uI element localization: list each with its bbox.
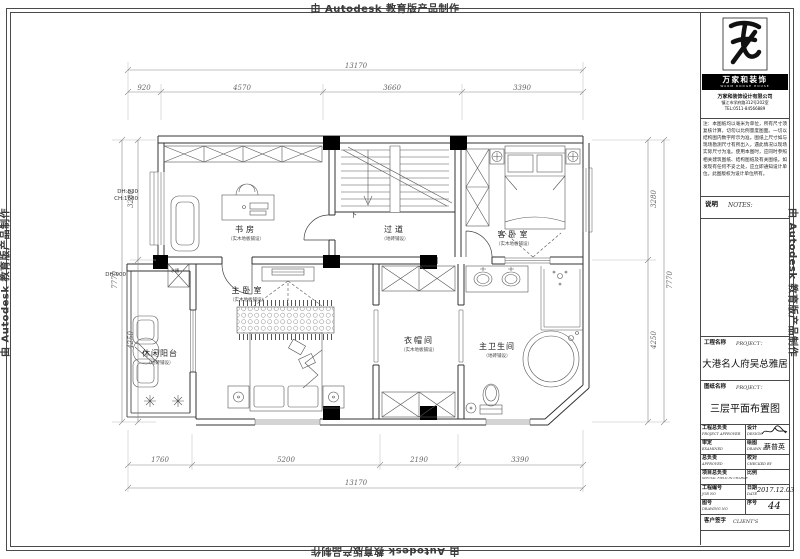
dim-left-2: 4250: [127, 320, 135, 360]
tb-line: [700, 514, 790, 515]
tb-grid-vline: [745, 424, 746, 514]
titleblock-divider: [700, 12, 701, 545]
tb-line: [700, 380, 790, 381]
project-label: 工程名称: [704, 340, 726, 346]
room-study: 书房 （实木地板铺设）: [228, 224, 264, 242]
tb-line: [700, 196, 790, 197]
room-cloak: 衣帽间 （实木地板铺设）: [401, 335, 437, 353]
furniture: [133, 146, 583, 417]
field-drawing-no: 图号 DRAWING NO: [702, 501, 728, 511]
dim-left-overall: 7770: [111, 260, 119, 300]
room-master-bath: 主卫生间 （地砖铺设）: [479, 341, 515, 359]
tb-line: [700, 218, 790, 219]
structural-pillars: [153, 136, 467, 420]
room-master-bedroom: 主卧室 （实木地板铺设）: [230, 285, 266, 303]
dim-top-2: 4570: [233, 84, 251, 92]
notes-label-en: NOTES:: [728, 202, 753, 209]
company-phone: TEL:0511-84566889: [700, 106, 790, 111]
field-serial: 序号: [747, 501, 757, 507]
dim-top-3: 3660: [383, 84, 401, 92]
client-sign-label-en: CLIENT'S: [733, 519, 758, 525]
field-scale: 比例: [747, 471, 757, 477]
project-label-en: PROJECT：: [736, 341, 765, 347]
room-balcony: 休闲阳台 （地砖铺设）: [142, 348, 178, 366]
dim-top-4: 3390: [513, 84, 531, 92]
dim-top-overall: 13170: [345, 62, 367, 70]
dim-right-overall: 7770: [666, 260, 674, 300]
designer-signature: [760, 425, 788, 438]
balcony-height-note: DH:900: [92, 272, 126, 279]
company-name: 万家和装饰设计有限公司: [700, 93, 790, 100]
serial-value: 44: [768, 501, 781, 512]
windows: [150, 168, 592, 425]
drawn-by-name: 蔡普英: [764, 442, 785, 452]
tb-line: [700, 336, 790, 337]
dim-bottom-3: 2190: [410, 456, 428, 464]
project-name: 大港名人府吴总雅居: [700, 356, 790, 370]
brand-banner: 万家和装饰 WARM DODGE HOUSE: [702, 74, 788, 90]
sink-label: 水槽: [171, 268, 179, 273]
dimension-lines: [119, 67, 667, 491]
room-guest-bedroom: 客卧室 （实木地板铺设）: [496, 229, 532, 247]
field-checked-by: 校对 CHECKED BY: [747, 456, 772, 466]
dim-bottom-overall: 13170: [345, 479, 367, 487]
drawing-sheet: 由 Autodesk 教育版产品制作 由 Autodesk 教育版产品制作 由 …: [0, 0, 800, 559]
dim-bottom-1: 1760: [151, 456, 169, 464]
field-job-no: 工程编号 JOB NO: [702, 486, 722, 496]
drawing-label: 图纸名称: [704, 384, 726, 390]
window-height-note: DH:830 CH:1680: [96, 189, 138, 203]
field-date: 日期 DATE: [747, 486, 757, 496]
field-project-approver: 工程总负责 PROJECT APPROVER: [702, 426, 740, 436]
field-examined: 审定 EXAMINED: [702, 441, 723, 451]
company-logo-icon: [721, 16, 769, 72]
stairs-down-label: 下: [350, 211, 357, 220]
dim-top-1: 920: [137, 84, 150, 92]
tb-line: [700, 118, 790, 119]
dim-right-2: 4250: [650, 320, 658, 360]
notes-label: 说明: [705, 201, 718, 208]
general-notes: 注：本图纸均以毫米为单位，所有尺寸须复核计算，切勿以比例量度图面。一切以结构图内…: [703, 121, 787, 178]
stairs: [341, 146, 452, 212]
dim-right-1: 3280: [650, 179, 658, 219]
dim-bottom-2: 5200: [277, 456, 295, 464]
room-corridor: 过道 （地砖铺设）: [382, 224, 409, 242]
client-sign-label: 客户签字: [704, 518, 726, 524]
field-approved: 总负责 APPROVED: [702, 456, 723, 466]
field-special: 项目总负责 SPECIAL FIELD IN CHARGE: [702, 471, 748, 480]
dim-bottom-4: 3390: [511, 456, 529, 464]
tb-line: [700, 530, 790, 531]
drawing-name: 三层平面布置图: [700, 400, 790, 415]
date-value: 2017.12.03: [757, 486, 794, 494]
drawing-label-en: PROJECT：: [736, 385, 765, 391]
